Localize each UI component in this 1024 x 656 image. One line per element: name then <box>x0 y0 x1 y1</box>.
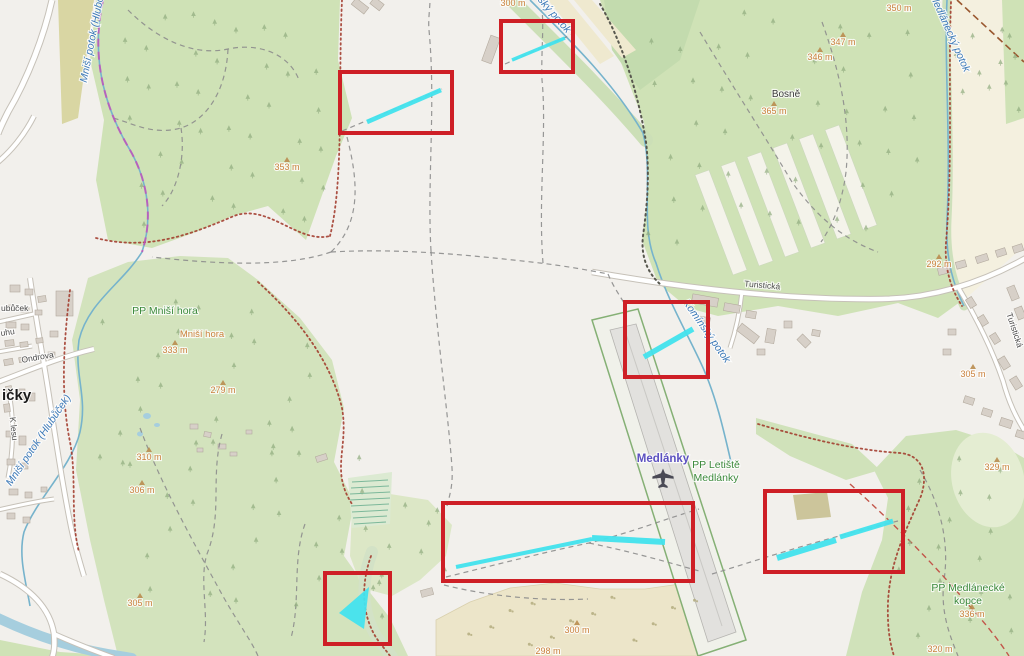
elevation-label: 333 m <box>162 345 187 355</box>
bush-icon <box>674 607 676 609</box>
pond <box>143 413 151 419</box>
building <box>784 321 792 328</box>
bush-icon <box>509 609 512 612</box>
elevation-label: 279 m <box>210 385 235 395</box>
building <box>25 492 32 498</box>
building <box>25 289 33 295</box>
elevation-label: 305 m <box>127 598 152 608</box>
building <box>5 340 15 347</box>
building <box>190 424 198 429</box>
building <box>56 291 73 316</box>
bush-icon <box>553 637 555 639</box>
building <box>204 431 212 437</box>
bush-icon <box>591 612 594 615</box>
elevation-label: 350 m <box>886 3 911 13</box>
building <box>943 349 951 355</box>
building <box>812 329 821 336</box>
building <box>35 310 42 315</box>
bush-icon <box>531 644 533 646</box>
elevation-label: 306 m <box>129 485 154 495</box>
building <box>38 295 47 302</box>
building <box>246 430 252 434</box>
protected-area-label: PP Letiště <box>692 459 740 471</box>
place-label: Medlánky <box>637 453 690 465</box>
place-label: Bosně <box>772 89 801 100</box>
elevation-label: 353 m <box>274 162 299 172</box>
bush-icon <box>655 624 657 626</box>
building <box>7 459 15 465</box>
elevation-label: 346 m <box>807 52 832 62</box>
bush-icon <box>635 640 637 642</box>
bush-icon <box>492 627 494 629</box>
building <box>23 517 30 523</box>
building <box>4 358 14 365</box>
bush-icon <box>489 625 492 628</box>
forest-topleft <box>90 0 352 248</box>
building <box>757 349 765 355</box>
elevation-label: 300 m <box>500 0 525 8</box>
elevation-label: 292 m <box>926 259 951 269</box>
protected-area-label: PP Medlánecké <box>931 582 1005 594</box>
bush-icon <box>652 622 655 625</box>
bush-icon <box>594 613 596 615</box>
bush-icon <box>632 638 635 641</box>
elevation-label: 310 m <box>136 452 161 462</box>
bush-icon <box>613 597 615 599</box>
elevation-label: 305 m <box>960 369 985 379</box>
building <box>230 452 237 456</box>
building <box>20 342 28 348</box>
protected-area-label: kopce <box>954 595 982 607</box>
bush-icon <box>470 634 472 636</box>
building <box>10 285 20 292</box>
building <box>36 338 43 344</box>
building <box>21 324 29 330</box>
place-label: Mniší hora <box>180 329 225 340</box>
place-label: ičky <box>2 387 32 404</box>
bush-icon <box>533 603 535 605</box>
bush-icon <box>550 635 553 638</box>
map-canvas: Mniší potok (Hluboský potokKomínský poto… <box>0 0 1024 656</box>
map-viewport: Mniší potok (Hluboský potokKomínský poto… <box>0 0 1024 656</box>
protected-area-label: PP Mniší hora <box>132 305 198 317</box>
building <box>948 329 956 335</box>
building <box>41 487 47 492</box>
bush-icon <box>531 602 534 605</box>
building <box>9 489 18 495</box>
bush-icon <box>610 596 613 599</box>
building <box>7 513 15 519</box>
street-label: ubůček <box>1 303 29 313</box>
bush-icon <box>528 643 531 646</box>
bush-icon <box>467 632 470 635</box>
pond <box>154 423 160 427</box>
street-label: uhu <box>0 326 16 338</box>
elevation-label: 365 m <box>761 106 786 116</box>
bush-icon <box>569 619 572 622</box>
protected-area-label: Medlánky <box>694 472 740 484</box>
elevation-label: 300 m <box>564 625 589 635</box>
olive-square-right <box>793 492 831 520</box>
elevation-label: 320 m <box>927 644 952 654</box>
highlighted-segment-5[interactable] <box>592 538 665 542</box>
elevation-label: 298 m <box>535 646 560 656</box>
building <box>4 404 11 413</box>
building <box>50 331 58 337</box>
elevation-label: 336 m <box>959 609 984 619</box>
elevation-label: 347 m <box>830 37 855 47</box>
elevation-label: 329 m <box>984 462 1009 472</box>
bush-icon <box>511 610 513 612</box>
building <box>745 310 756 319</box>
bush-icon <box>693 599 696 602</box>
bush-icon <box>696 600 698 602</box>
bush-icon <box>671 606 674 609</box>
bush-icon <box>572 621 574 623</box>
building <box>197 448 203 452</box>
